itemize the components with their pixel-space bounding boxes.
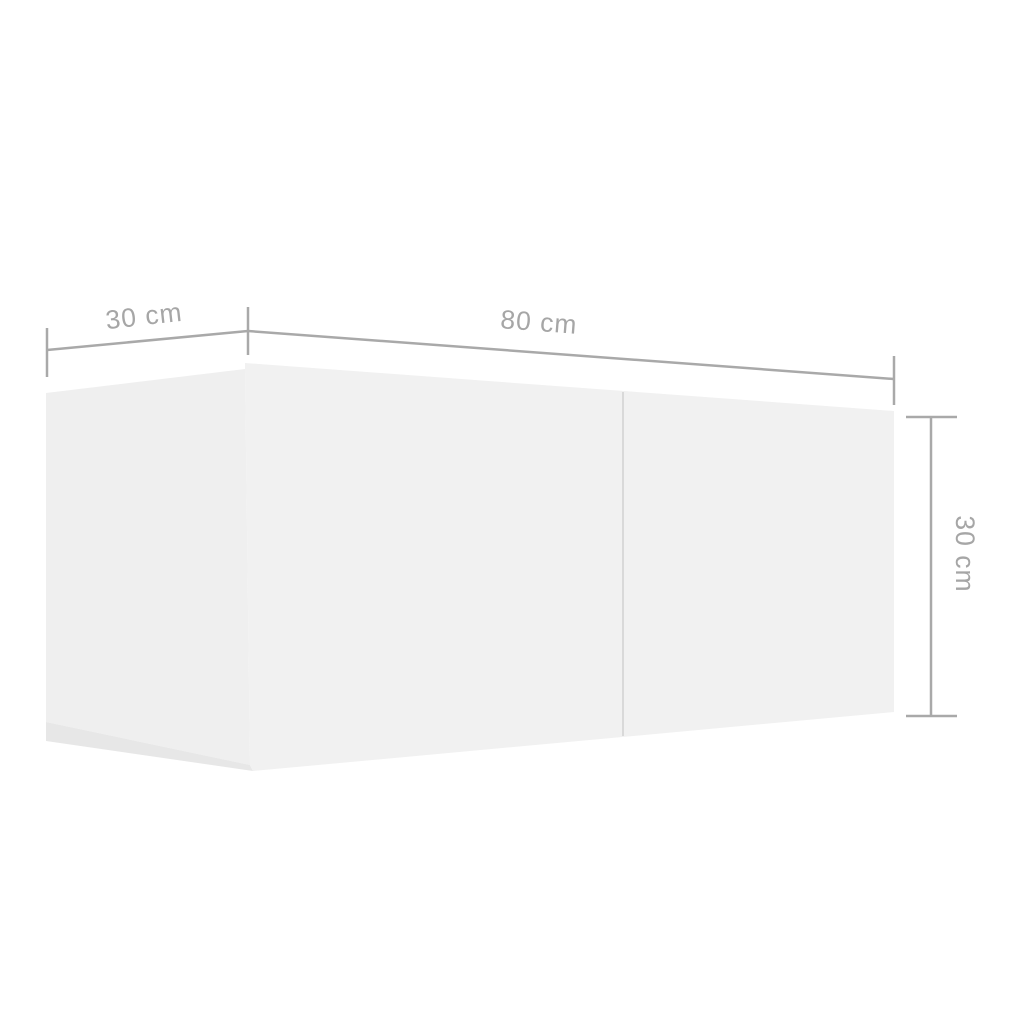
height-dimension: 30 cm <box>906 417 980 716</box>
product-dimension-diagram: 30 cm 80 cm 30 cm <box>0 0 1024 1024</box>
depth-dimension-label: 30 cm <box>104 297 184 335</box>
cabinet <box>46 363 894 771</box>
cabinet-side-face <box>46 369 250 765</box>
depth-dimension: 30 cm <box>47 297 248 377</box>
height-dimension-label: 30 cm <box>950 515 980 592</box>
diagram-canvas: 30 cm 80 cm 30 cm <box>0 0 1024 1024</box>
cabinet-front-face <box>245 363 894 771</box>
depth-dimension-line <box>47 331 248 350</box>
width-dimension-label: 80 cm <box>499 304 578 340</box>
